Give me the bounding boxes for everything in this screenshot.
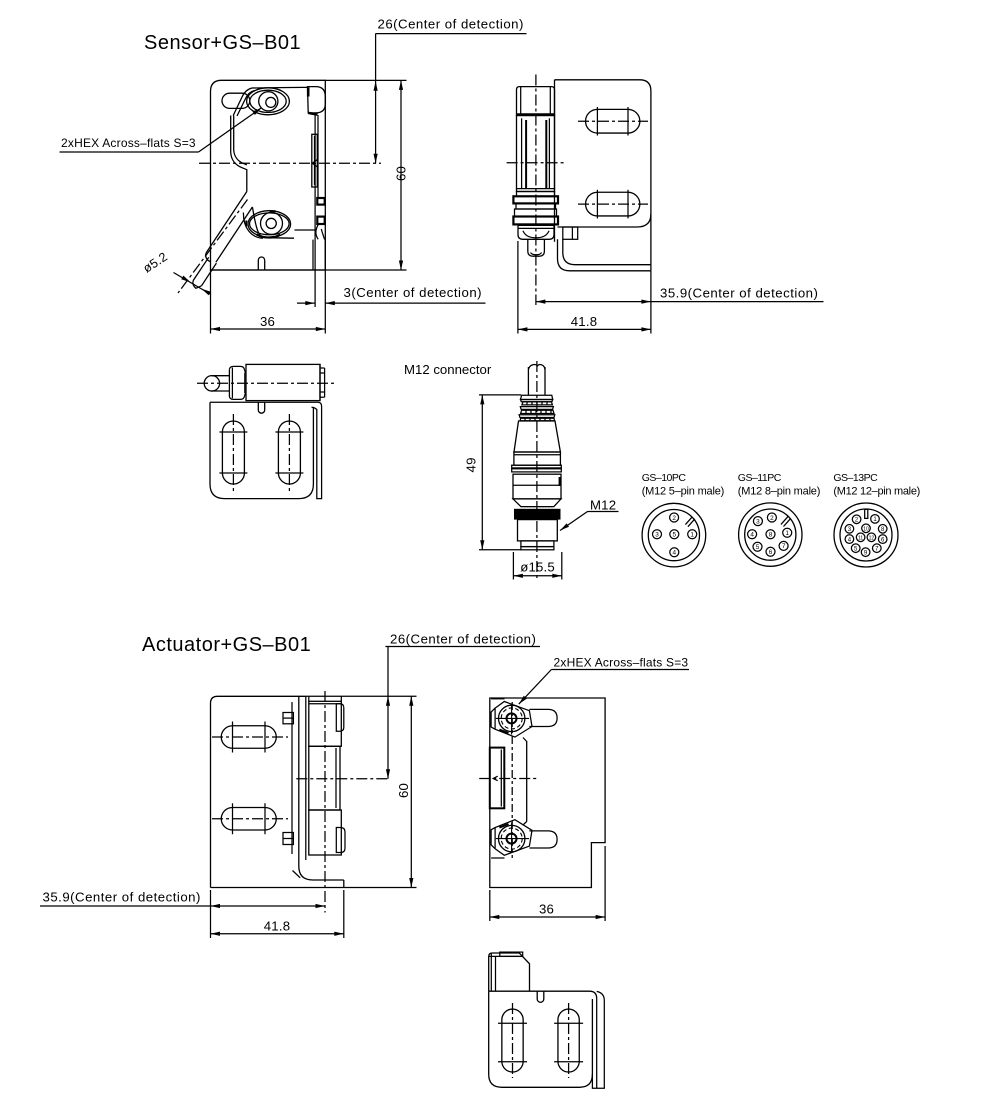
svg-text:36: 36 xyxy=(539,902,554,917)
svg-text:GS–10PC: GS–10PC xyxy=(642,472,687,484)
svg-text:11: 11 xyxy=(858,536,863,542)
svg-text:41.8: 41.8 xyxy=(264,919,290,934)
svg-text:3: 3 xyxy=(756,518,760,525)
svg-text:1: 1 xyxy=(690,532,694,539)
svg-text:5: 5 xyxy=(756,544,760,551)
svg-text:12: 12 xyxy=(869,536,875,542)
svg-text:GS–13PC: GS–13PC xyxy=(833,472,878,484)
svg-text:26(Center of detection): 26(Center of detection) xyxy=(390,632,536,647)
svg-text:3: 3 xyxy=(655,532,659,539)
svg-text:26(Center of detection): 26(Center of detection) xyxy=(378,17,524,32)
svg-text:6: 6 xyxy=(769,549,773,556)
svg-text:36: 36 xyxy=(260,314,275,329)
svg-text:Actuator+GS–B01: Actuator+GS–B01 xyxy=(142,634,311,656)
svg-text:(M12 8–pin male): (M12 8–pin male) xyxy=(738,486,820,498)
svg-text:3(Center of detection): 3(Center of detection) xyxy=(344,285,483,300)
svg-text:2: 2 xyxy=(672,515,676,522)
svg-text:Sensor+GS–B01: Sensor+GS–B01 xyxy=(144,32,301,54)
svg-text:2xHEX Across–flats S=3: 2xHEX Across–flats S=3 xyxy=(554,656,689,670)
svg-text:35.9(Center of detection): 35.9(Center of detection) xyxy=(43,890,201,905)
svg-text:5: 5 xyxy=(673,532,677,539)
svg-text:4: 4 xyxy=(750,532,754,539)
svg-text:35.9(Center of detection): 35.9(Center of detection) xyxy=(660,286,818,301)
svg-text:8: 8 xyxy=(769,532,773,539)
svg-text:(M12 5–pin male): (M12 5–pin male) xyxy=(642,486,724,498)
svg-text:1: 1 xyxy=(785,530,789,537)
svg-text:GS–11PC: GS–11PC xyxy=(738,472,782,484)
svg-text:60: 60 xyxy=(396,783,411,798)
svg-text:M12 connector: M12 connector xyxy=(404,362,492,377)
svg-text:ø5.2: ø5.2 xyxy=(141,250,170,276)
svg-text:49: 49 xyxy=(464,457,479,472)
svg-text:(M12 12–pin male): (M12 12–pin male) xyxy=(833,486,920,498)
svg-text:60: 60 xyxy=(394,166,409,181)
svg-text:ø15.5: ø15.5 xyxy=(520,560,555,575)
svg-text:7: 7 xyxy=(782,543,786,550)
svg-text:M12: M12 xyxy=(590,498,616,513)
svg-text:4: 4 xyxy=(673,550,677,557)
svg-text:2xHEX Across–flats S=3: 2xHEX Across–flats S=3 xyxy=(61,136,196,150)
svg-text:2: 2 xyxy=(770,515,774,522)
svg-text:10: 10 xyxy=(863,527,869,533)
svg-text:41.8: 41.8 xyxy=(571,314,597,329)
